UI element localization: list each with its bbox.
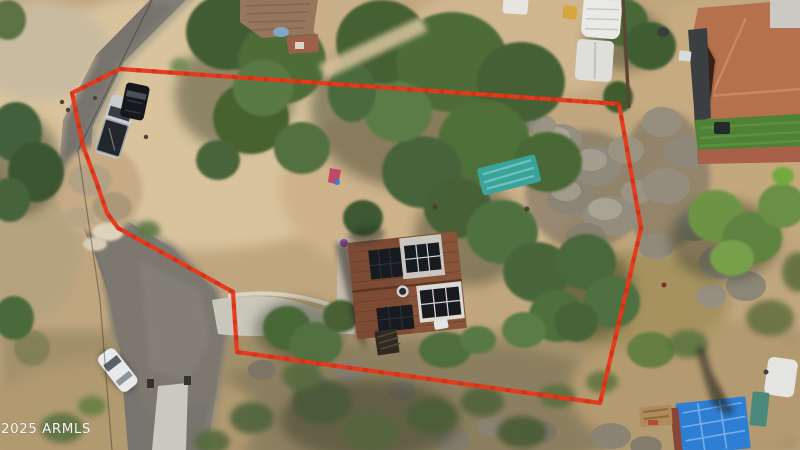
yellow-equipment	[562, 5, 578, 20]
teal-panel	[749, 391, 769, 427]
aerial-photo: 2025 ARMLS	[0, 0, 800, 450]
white-rv	[763, 356, 798, 398]
solar-array-sw	[376, 304, 414, 332]
patio-furniture	[714, 122, 730, 134]
solar-array-se	[420, 287, 462, 319]
flat-roof-section	[770, 0, 800, 28]
solar-array-ne	[404, 242, 442, 273]
shed-roof	[502, 0, 528, 15]
post	[184, 376, 191, 385]
ac-unit	[679, 50, 692, 61]
blue-cover	[273, 27, 289, 37]
aerial-photo-canvas: 2025 ARMLS	[0, 0, 800, 450]
watermark: 2025 ARMLS	[1, 421, 91, 437]
neighbor-northeast-house	[679, 0, 800, 164]
post	[147, 379, 154, 388]
solar-array-nw	[368, 247, 403, 279]
